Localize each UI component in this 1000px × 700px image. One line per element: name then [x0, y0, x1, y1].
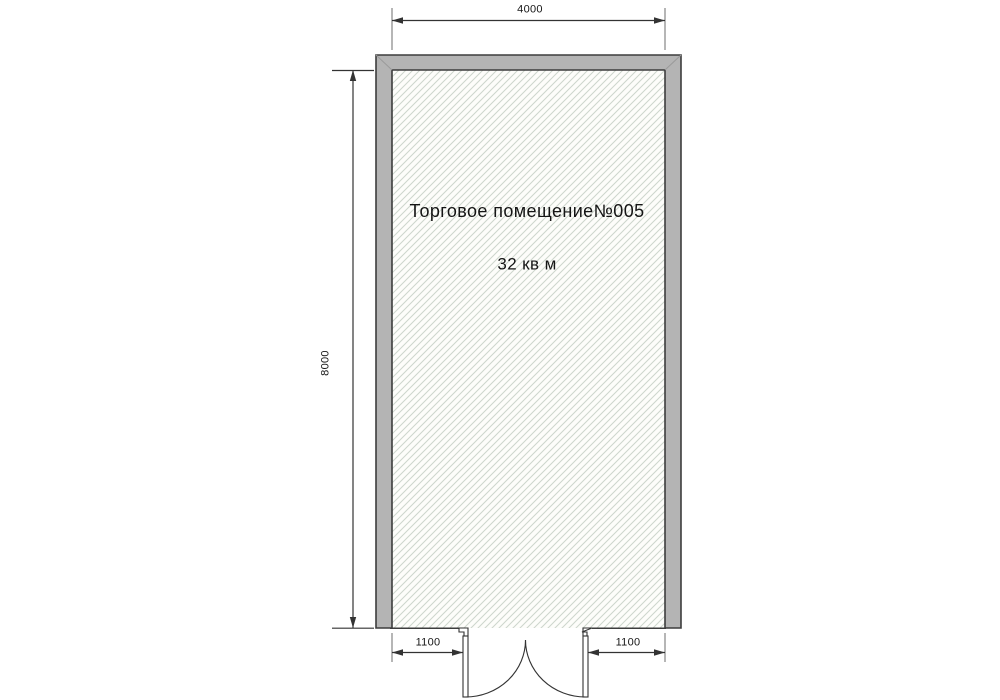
arrowhead-door-right-out	[654, 649, 665, 655]
dimension-door-left-label: 1100	[416, 638, 441, 649]
floor-plan-drawing	[0, 0, 1000, 700]
room-name-label: Торговое помещение№005	[409, 202, 644, 220]
arrowhead-door-left-out	[392, 649, 403, 655]
door-jamb-left	[459, 628, 468, 636]
arrowhead-left-down	[350, 617, 356, 628]
door-swing-arc-right	[526, 640, 586, 697]
double-door	[459, 628, 592, 697]
floor-plan: Торговое помещение№005 32 кв м 4000 8000…	[0, 0, 1000, 700]
room-area-label: 32 кв м	[497, 256, 556, 273]
dimension-top-label: 4000	[517, 5, 543, 16]
arrowhead-door-right-in	[588, 649, 599, 655]
dimension-door-right-label: 1100	[616, 638, 641, 649]
door-swing-arc-left	[466, 640, 526, 697]
arrowhead-top-left	[392, 17, 403, 23]
arrowhead-door-left-in	[452, 649, 463, 655]
arrowhead-top-right	[654, 17, 665, 23]
dimension-left-label: 8000	[321, 350, 332, 376]
arrowhead-left-up	[350, 70, 356, 81]
door-jamb-right	[582, 628, 592, 636]
room-floor-hatch	[392, 70, 665, 628]
door-leaf-left	[463, 636, 468, 697]
door-leaf-right	[583, 636, 588, 697]
